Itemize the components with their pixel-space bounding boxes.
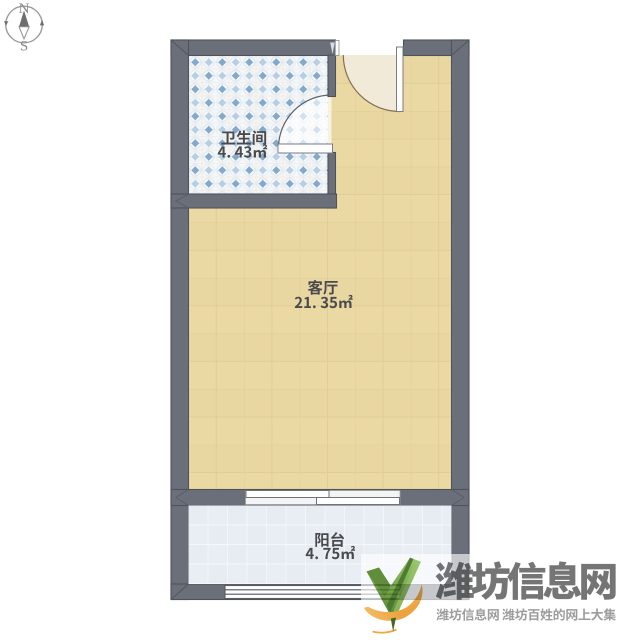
svg-text:N: N: [19, 1, 30, 17]
svg-text:S: S: [20, 39, 28, 55]
